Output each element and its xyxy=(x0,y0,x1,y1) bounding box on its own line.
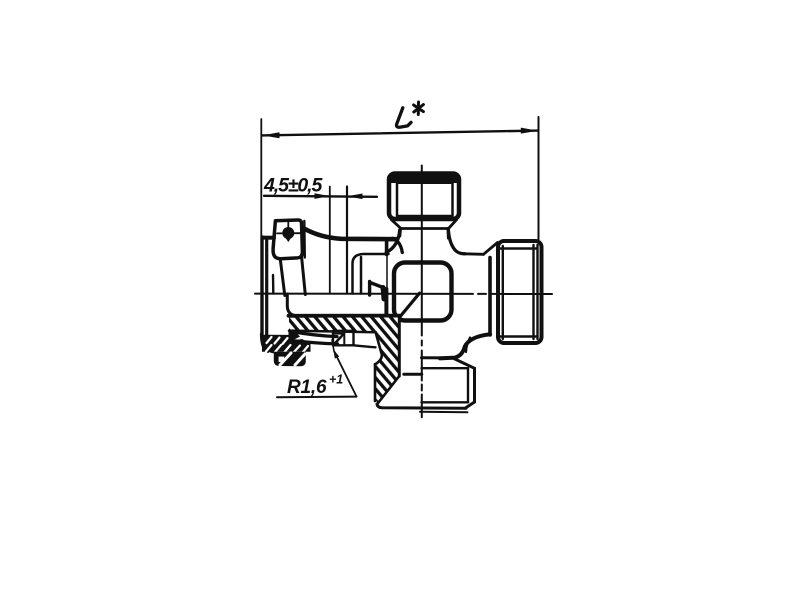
svg-text:4,5±0,5: 4,5±0,5 xyxy=(263,175,323,197)
svg-text:R1,6: R1,6 xyxy=(287,377,327,398)
svg-text:+1: +1 xyxy=(329,373,343,387)
